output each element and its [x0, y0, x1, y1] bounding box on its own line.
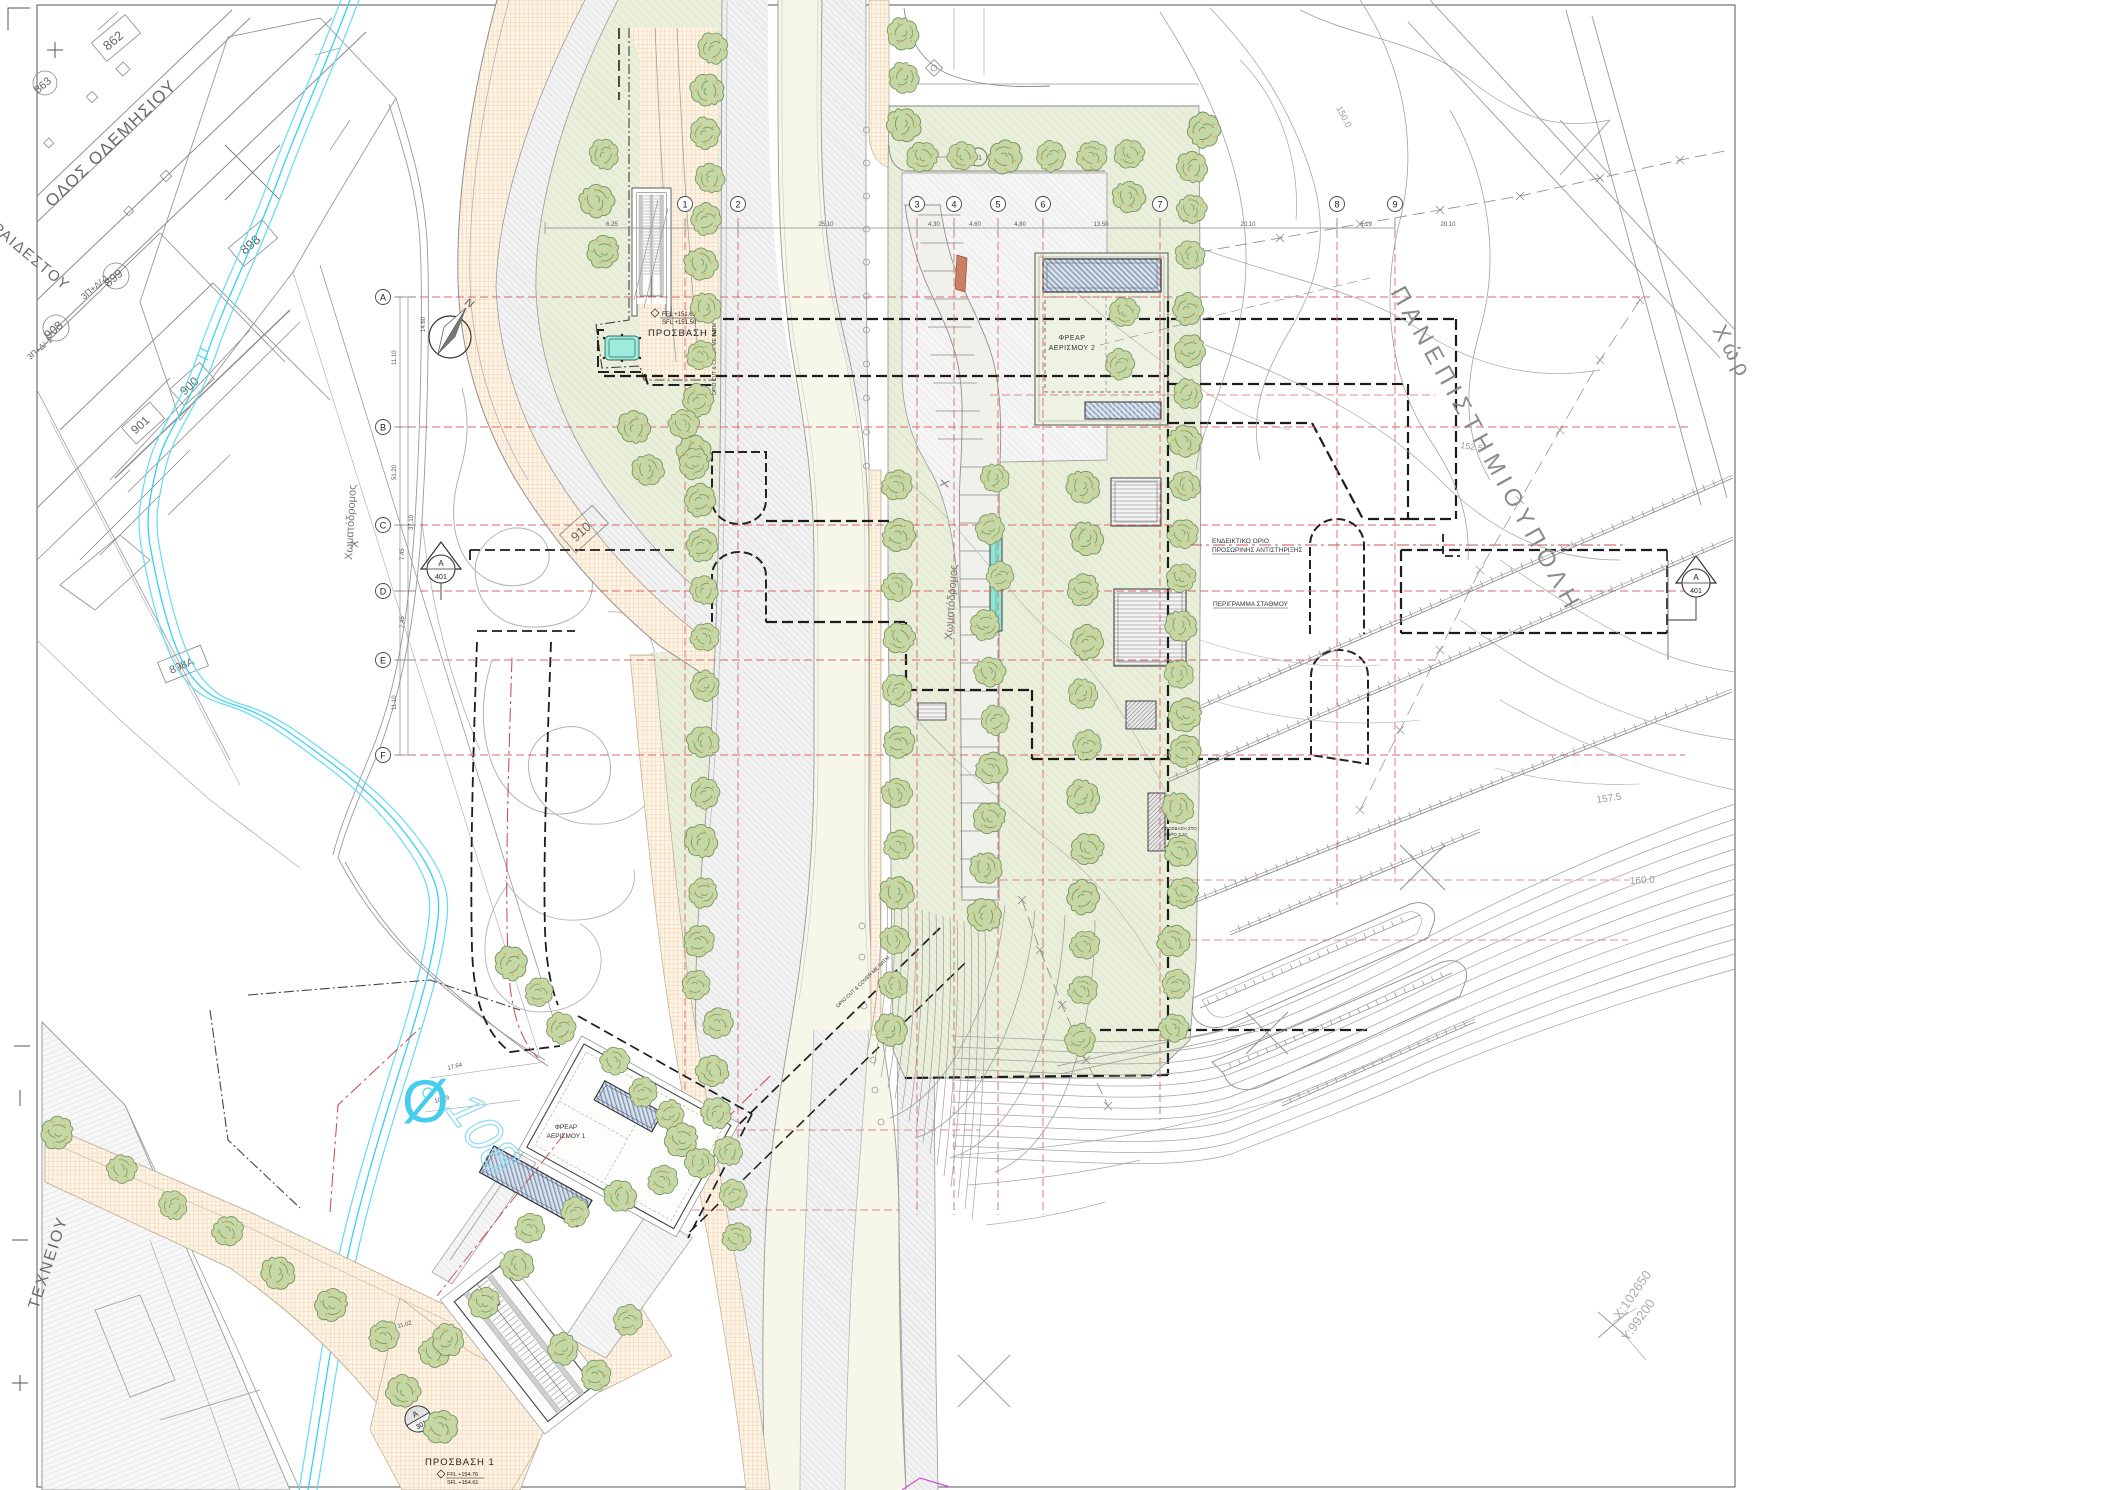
svg-text:ΕΝΔΕΙΚΤΙΚΟ ΟΡΙΟ: ΕΝΔΕΙΚΤΙΚΟ ΟΡΙΟ	[1212, 538, 1269, 545]
svg-text:8: 8	[1334, 200, 1339, 210]
svg-text:F: F	[380, 751, 386, 761]
svg-text:9: 9	[1392, 200, 1397, 210]
svg-text:7.45: 7.45	[400, 616, 406, 628]
svg-text:7: 7	[1157, 200, 1162, 210]
svg-text:ΦΡΕΑΡ: ΦΡΕΑΡ	[555, 1124, 578, 1131]
svg-text:4.80: 4.80	[1014, 222, 1026, 228]
svg-text:B: B	[380, 423, 386, 433]
svg-text:25.10: 25.10	[818, 222, 834, 228]
svg-text:A: A	[1693, 573, 1699, 582]
svg-text:4.30: 4.30	[928, 222, 940, 228]
svg-text:5: 5	[995, 200, 1000, 210]
svg-text:A: A	[380, 293, 386, 303]
svg-text:6.25: 6.25	[606, 222, 618, 228]
svg-text:ΠΡΟΣΒΑΣΗ 2: ΠΡΟΣΒΑΣΗ 2	[648, 328, 718, 339]
svg-text:FFL +151.65: FFL +151.65	[662, 312, 697, 318]
svg-text:401: 401	[1690, 588, 1702, 595]
svg-text:401: 401	[435, 574, 447, 581]
svg-text:ΠΕΡΙΓΡΑΜΜΑ ΣΤΑΘΜΟΥ: ΠΕΡΙΓΡΑΜΜΑ ΣΤΑΘΜΟΥ	[1213, 601, 1289, 608]
svg-text:ΑΕΡΙΣΜΟΥ 1: ΑΕΡΙΣΜΟΥ 1	[547, 1133, 586, 1140]
svg-text:D: D	[380, 587, 387, 597]
svg-text:51.20: 51.20	[392, 464, 398, 480]
svg-text:14.60: 14.60	[421, 316, 427, 332]
svg-text:ΠΡΟΣΒΑΣΗ 1: ΠΡΟΣΒΑΣΗ 1	[425, 1457, 495, 1468]
svg-text:13.50: 13.50	[1093, 222, 1109, 228]
svg-text:Χ: Χ	[349, 540, 361, 549]
svg-text:4.60: 4.60	[969, 222, 981, 228]
svg-text:C: C	[380, 521, 387, 531]
svg-text:E: E	[380, 656, 386, 666]
svg-text:7.45: 7.45	[400, 548, 406, 560]
svg-text:ΦΡΕΑΡ: ΦΡΕΑΡ	[1059, 335, 1086, 342]
svg-text:6: 6	[1040, 200, 1045, 210]
svg-text:ΠΡΟΣΩΡΙΝΗΣ ΑΝΤΙΣΤΗΡΙΞΗΣ: ΠΡΟΣΩΡΙΝΗΣ ΑΝΤΙΣΤΗΡΙΞΗΣ	[1212, 547, 1303, 554]
svg-text:20.10: 20.10	[1440, 222, 1456, 228]
svg-text:20.10: 20.10	[1240, 222, 1256, 228]
svg-text:4: 4	[951, 200, 956, 210]
svg-text:2: 2	[735, 200, 740, 210]
svg-text:37.10: 37.10	[409, 514, 415, 530]
svg-text:3: 3	[914, 200, 919, 210]
svg-text:11.10: 11.10	[392, 695, 398, 710]
svg-text:FFL +154.76: FFL +154.76	[447, 1472, 478, 1478]
svg-text:SFL +154.61: SFL +154.61	[447, 1480, 478, 1486]
svg-text:1: 1	[682, 200, 687, 210]
svg-text:11.10: 11.10	[392, 350, 398, 365]
svg-text:ΑΕΡΙΣΜΟΥ 2: ΑΕΡΙΣΜΟΥ 2	[1049, 345, 1096, 352]
svg-text:SFL +151.50: SFL +151.50	[662, 320, 697, 326]
svg-text:A: A	[438, 559, 444, 568]
